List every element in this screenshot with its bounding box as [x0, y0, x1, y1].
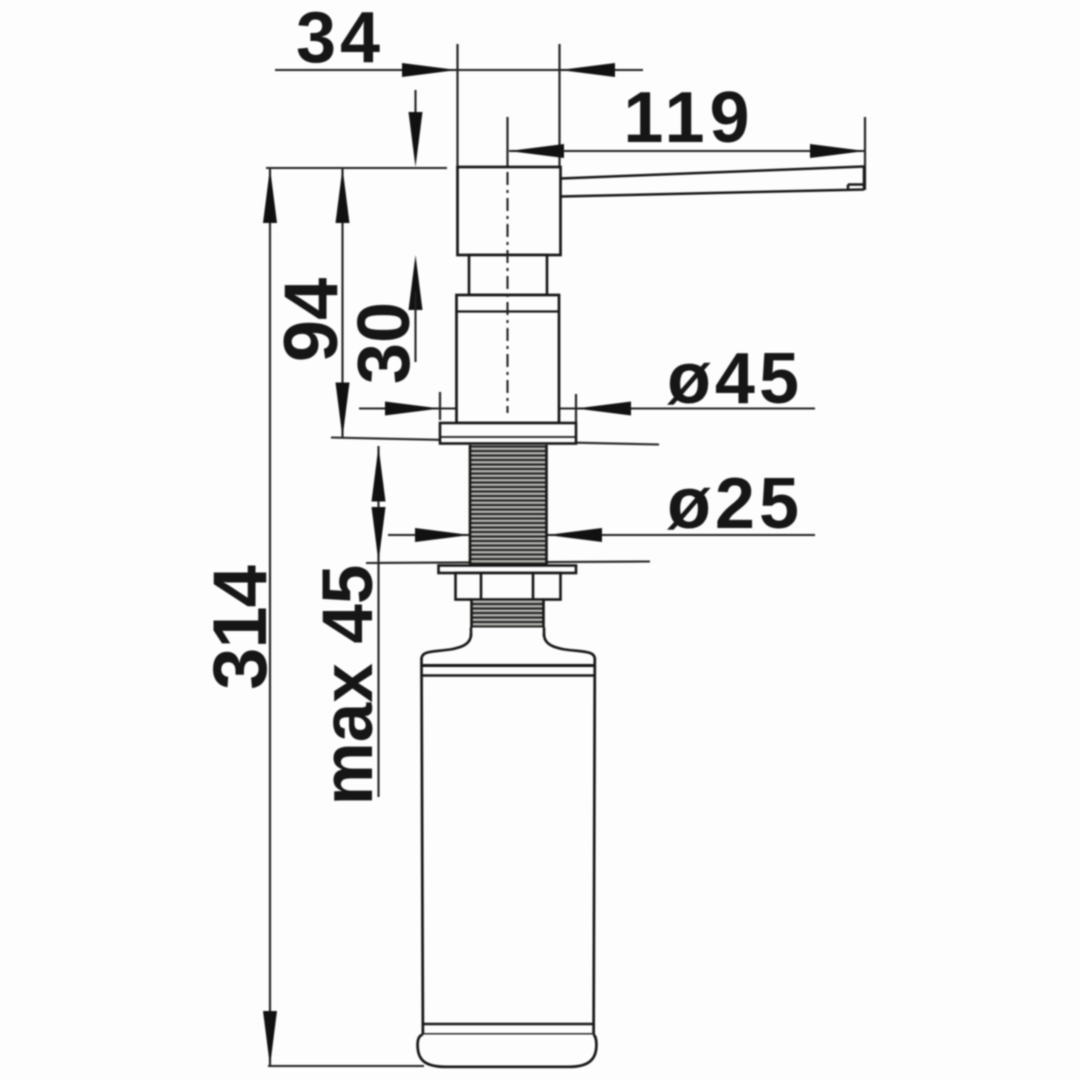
- svg-text:ø25: ø25: [667, 464, 803, 544]
- svg-text:34: 34: [296, 0, 384, 78]
- svg-text:30: 30: [342, 302, 425, 384]
- svg-text:94: 94: [269, 278, 354, 363]
- svg-text:max 45: max 45: [309, 565, 388, 806]
- svg-text:119: 119: [623, 78, 754, 158]
- svg-text:314: 314: [198, 565, 283, 690]
- svg-text:ø45: ø45: [667, 339, 803, 419]
